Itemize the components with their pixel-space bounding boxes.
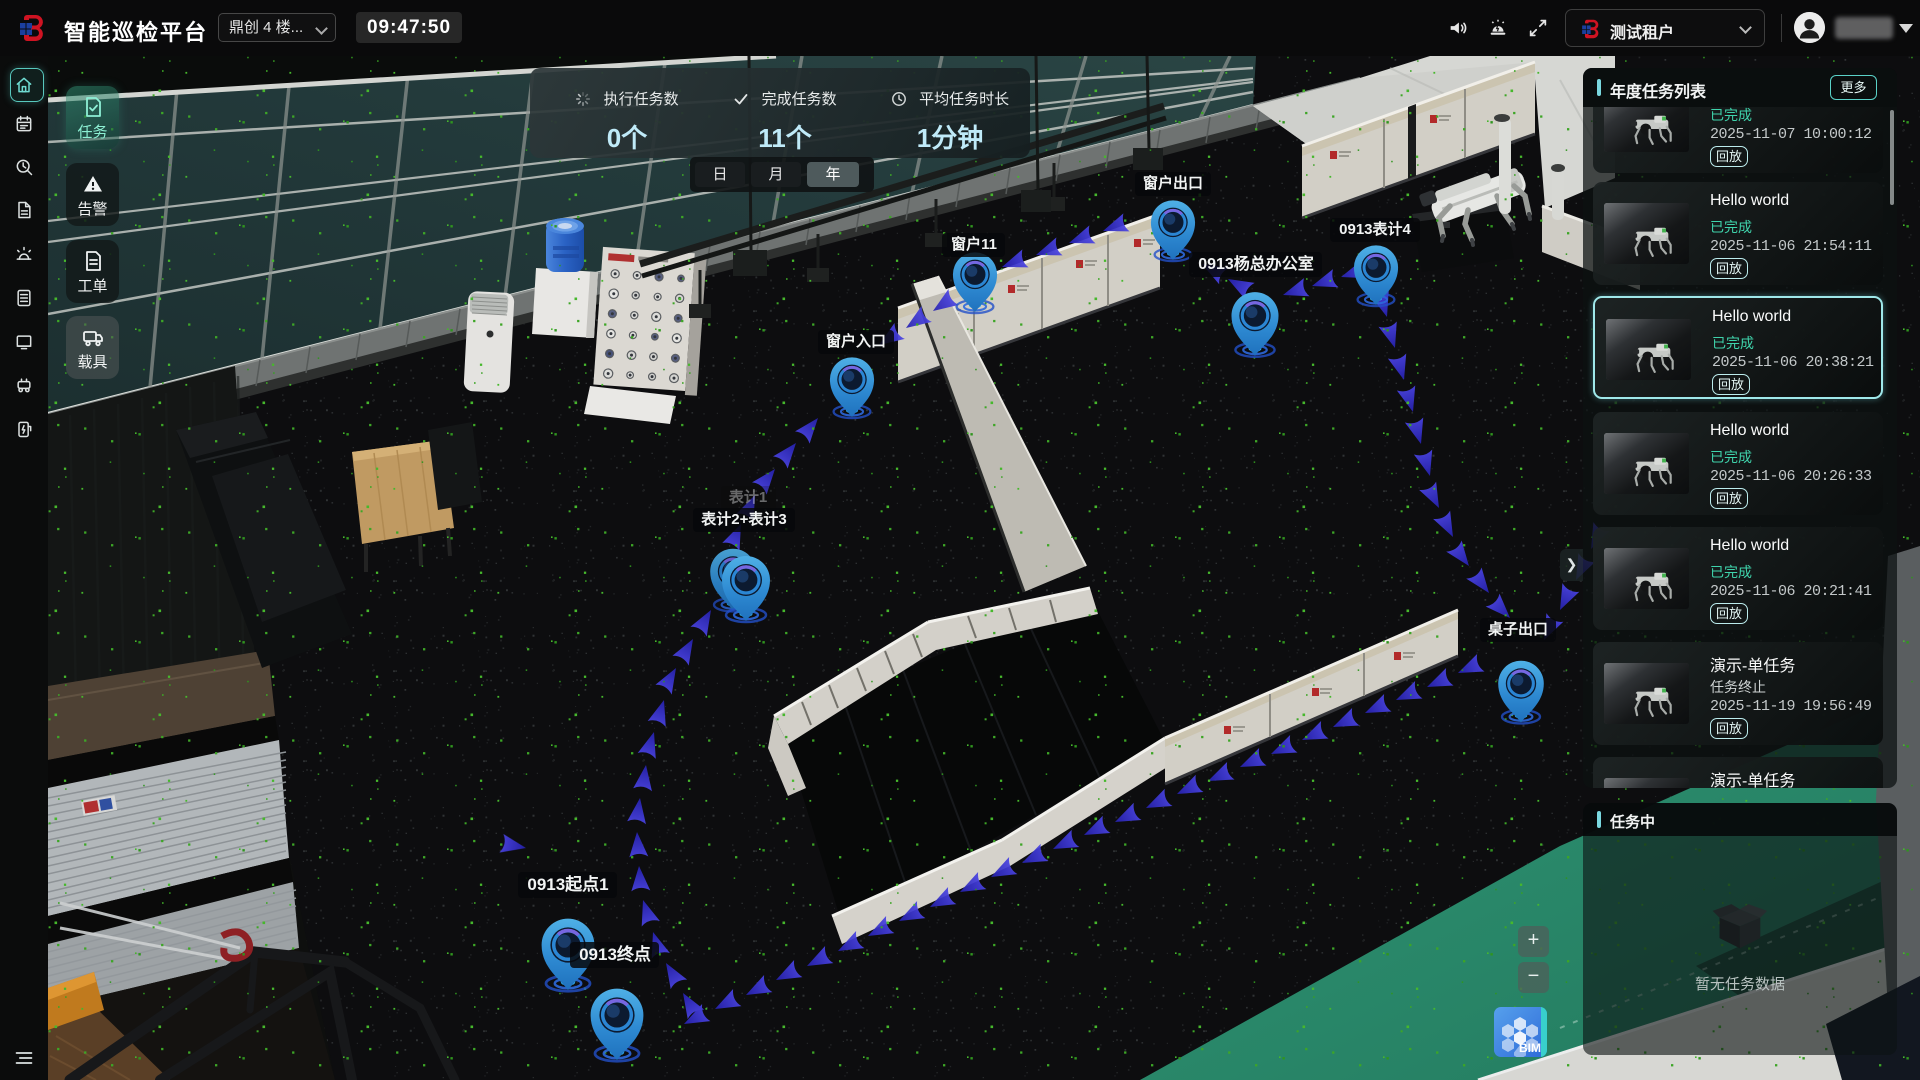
svg-text:表计1: 表计1 xyxy=(729,488,767,506)
svg-text:窗户出口: 窗户出口 xyxy=(1143,174,1203,192)
svg-text:0913终点: 0913终点 xyxy=(579,944,651,964)
svg-text:表计2+表计3: 表计2+表计3 xyxy=(701,510,786,528)
svg-text:窗户入口: 窗户入口 xyxy=(826,332,886,350)
svg-text:桌子出口: 桌子出口 xyxy=(1487,620,1548,638)
svg-text:0913表计4: 0913表计4 xyxy=(1339,220,1411,238)
svg-text:窗户11: 窗户11 xyxy=(951,235,997,253)
svg-text:0913杨总办公室: 0913杨总办公室 xyxy=(1198,254,1314,273)
svg-text:0913起点1: 0913起点1 xyxy=(527,874,608,894)
